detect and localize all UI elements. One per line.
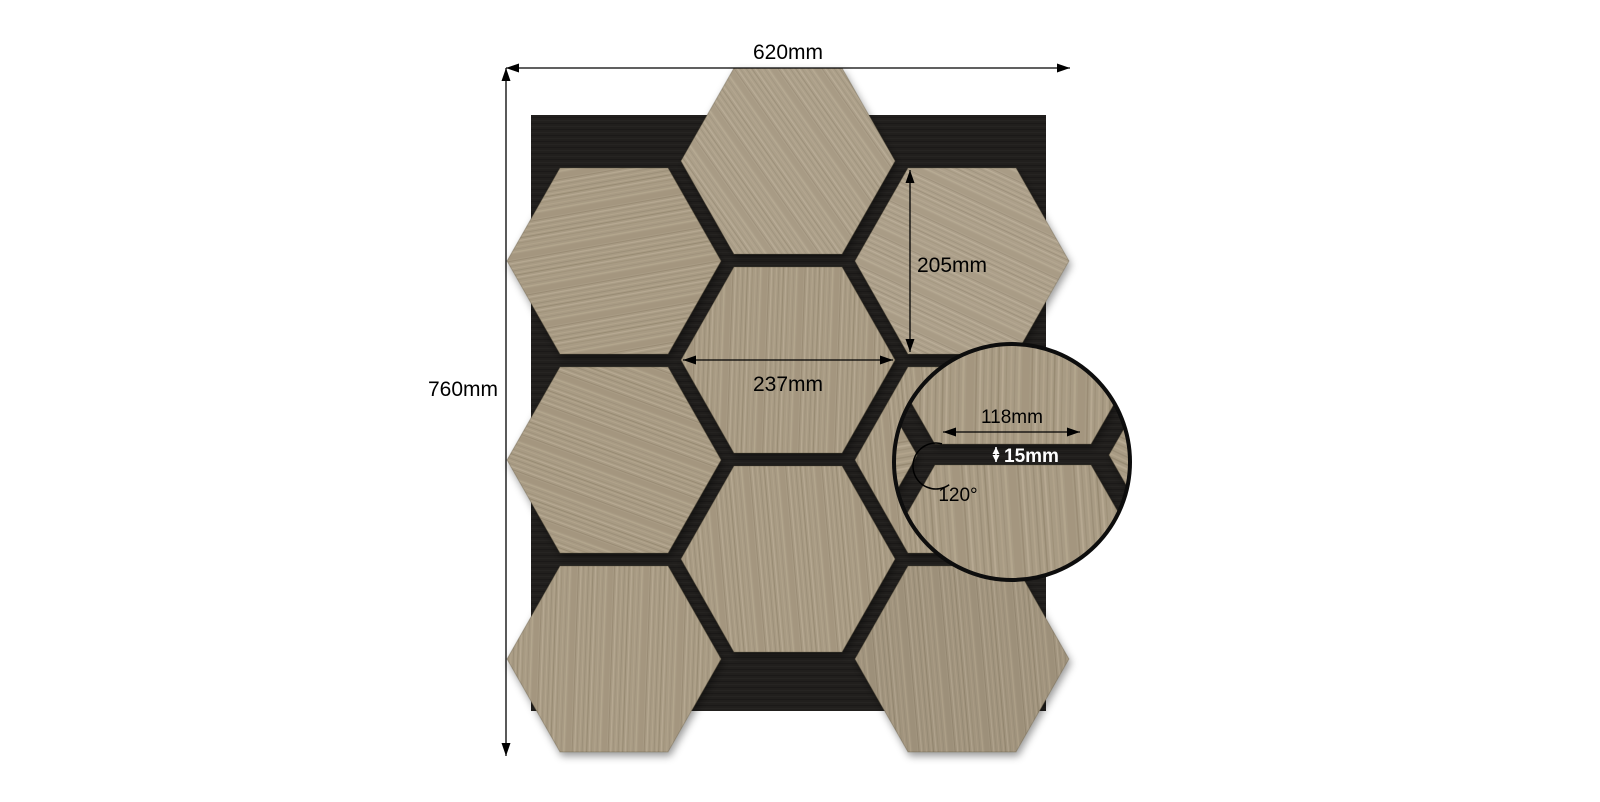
corner-angle-label: 120°	[938, 485, 977, 506]
tile-width-dimension-label: 237mm	[753, 373, 823, 396]
overall-width-dimension-label: 620mm	[753, 41, 823, 64]
gap-width-dimension-label: 15mm	[1004, 446, 1059, 467]
detail-hex-right	[1109, 321, 1419, 589]
diagram-canvas: 620mm 760mm 205mm 237mm 118mm 15mm 120°	[0, 0, 1600, 802]
overall-height-dimension-label: 760mm	[428, 378, 498, 401]
panel-dimension-diagram: 620mm 760mm 205mm 237mm 118mm 15mm 120°	[0, 0, 1600, 802]
tile-height-dimension-label: 205mm	[917, 254, 987, 277]
edge-length-dimension-label: 118mm	[981, 407, 1043, 428]
